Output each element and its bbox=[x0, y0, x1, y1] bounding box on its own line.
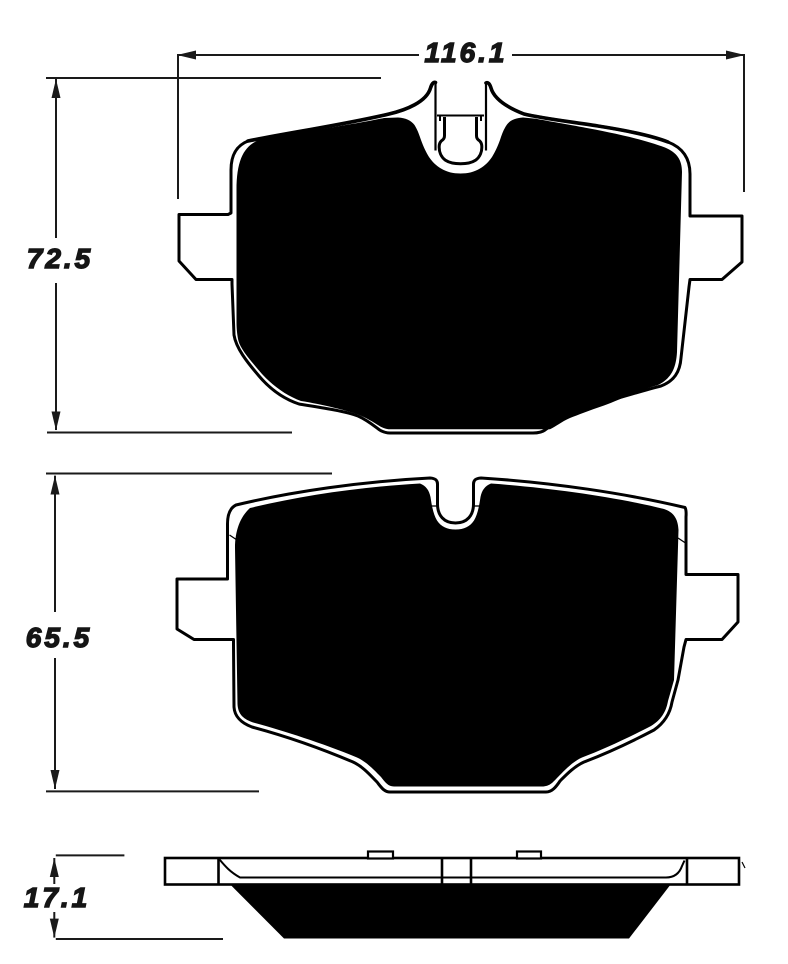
svg-text:116.1: 116.1 bbox=[425, 37, 508, 68]
svg-text:72.5: 72.5 bbox=[27, 243, 94, 274]
svg-text:65.5: 65.5 bbox=[26, 622, 93, 653]
svg-text:17.1: 17.1 bbox=[24, 882, 91, 913]
